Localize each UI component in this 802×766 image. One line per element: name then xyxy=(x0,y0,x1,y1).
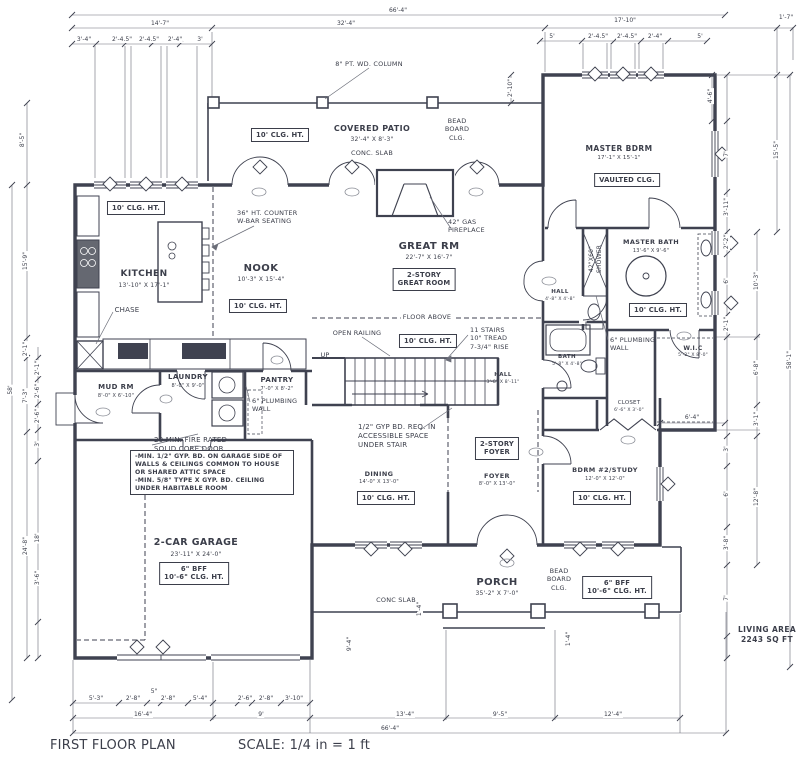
bdrm2-dims-line-0: 12'-0" X 12'-0" xyxy=(585,476,625,483)
shower-label: 42"X60"SHOWER xyxy=(588,245,604,273)
shower-label-line-0: 42"X60" xyxy=(588,245,596,273)
dim-label-0: 66'-4" xyxy=(388,8,408,14)
dining-line-0: DINING xyxy=(365,470,394,478)
kitchen-dims: 13'-10" X 17'-1" xyxy=(119,282,170,290)
garage-gyp-note-line-2: OR SHARED ATTIC SPACE xyxy=(135,469,289,477)
covered-patio-line-0: COVERED PATIO xyxy=(334,124,410,134)
dim-label-48: 5'-3" xyxy=(88,696,104,702)
dim-label-56: 16'-4" xyxy=(133,712,153,718)
floor-above-line-0: FLOOR ABOVE xyxy=(403,313,452,321)
kitchen-clg-box: 10' CLG. HT. xyxy=(107,201,165,215)
dim-label-23: 2'-6" xyxy=(35,383,41,399)
garage-gyp-note-line-4: UNDER HABITABLE ROOM xyxy=(135,485,289,493)
bath-dims: 5'-8" X 4'-8" xyxy=(552,362,582,368)
great-rm-dims-line-0: 22'-7" X 16'-7" xyxy=(406,254,453,262)
dim-label-16: 8'-5" xyxy=(20,132,26,148)
covered-patio-dims: 32'-4" X 8'-3" xyxy=(351,136,394,144)
kitchen-dims-line-0: 13'-10" X 17'-1" xyxy=(119,282,170,290)
dim-label-28: 4'-6" xyxy=(708,88,714,104)
porch-conc-slab-line-0: CONC SLAB xyxy=(376,596,416,604)
dim-label-45: 9'-4" xyxy=(347,636,353,652)
dim-label-31: 2'-2" xyxy=(724,234,730,250)
master-bdrm-dims: 17'-1" X 15'-1" xyxy=(597,155,640,162)
living-area-line-0: LIVING AREA xyxy=(738,625,796,635)
bead-board-clg-porch: BEADBOARDCLG. xyxy=(547,567,571,592)
fireplace-note-line-1: FIREPLACE xyxy=(448,226,485,234)
vaulted-clg-box: VAULTED CLG. xyxy=(594,173,660,187)
understair-note-line-1: ACCESSIBLE SPACE xyxy=(358,432,436,441)
dim-label-20: 24'-8" xyxy=(23,536,29,556)
pantry-line-0: PANTRY xyxy=(260,376,293,385)
dimension-lines xyxy=(12,15,793,733)
foyer-dims-line-0: 8'-0" X 13'-0" xyxy=(479,481,515,488)
dim-label-41: 7' xyxy=(724,594,730,601)
column-note-line-0: 8" PT. WD. COLUMN xyxy=(335,60,403,68)
fireplace-note-line-0: 42" GAS xyxy=(448,218,485,226)
mud-rm-dims: 8'-0" X 6'-10" xyxy=(98,393,134,400)
porch: PORCH xyxy=(476,576,517,589)
garage-bff-box-line-0: 6" BFF xyxy=(164,565,224,574)
garage-dims-line-0: 23'-11" X 24'-0" xyxy=(171,551,222,559)
dining-clg-box-line-0: 10' CLG. HT. xyxy=(362,494,410,503)
closet-line-0: CLOSET xyxy=(618,400,641,407)
up-label-line-0: UP xyxy=(320,351,329,359)
dim-label-52: 5'-4" xyxy=(192,696,208,702)
great-rm-box-line-1: GREAT ROOM xyxy=(398,279,451,288)
laundry: LAUNDRY xyxy=(168,373,208,382)
dim-label-60: 12'-4" xyxy=(603,712,623,718)
plumbing-wall-note-master-line-1: WALL xyxy=(610,344,655,352)
dim-label-34: 10'-3" xyxy=(754,271,760,291)
stair-clg-box: 10' CLG. HT. xyxy=(399,334,457,348)
stairs-note-line-1: 10" TREAD xyxy=(470,334,509,342)
foyer-box: 2-STORYFOYER xyxy=(475,437,519,460)
master-bdrm-line-0: MASTER BDRM xyxy=(586,144,653,154)
garage-dims: 23'-11" X 24'-0" xyxy=(171,551,222,559)
hall-upper-dims-line-0: 4'-8" X 4'-8" xyxy=(545,297,575,303)
understair-note: 1/2" GYP BD. REQ. INACCESSIBLE SPACEUNDE… xyxy=(358,423,436,450)
patio-conc-slab-line-0: CONC. SLAB xyxy=(351,149,393,157)
dim-label-10: 5' xyxy=(548,34,555,40)
dim-label-61: 66'-4" xyxy=(380,726,400,732)
great-rm-box-line-0: 2-STORY xyxy=(398,271,451,280)
dim-label-37: 3' xyxy=(724,445,730,452)
dim-label-53: 2'-6" xyxy=(237,696,253,702)
first-floor-plan-sheet: FIRST FLOOR PLANSCALE: 1/4 in = 1 ftLIVI… xyxy=(0,0,802,766)
dim-label-2: 32'-4" xyxy=(336,21,356,27)
plumbing-wall-note-pantry-line-0: 6" PLUMBING xyxy=(252,397,297,405)
stairs-note: 11 STAIRS10" TREAD7-3/4" RISE xyxy=(470,326,509,351)
dining-dims-line-0: 14'-0" X 13'-0" xyxy=(359,479,399,486)
open-railing: OPEN RAILING xyxy=(333,329,382,337)
hall-lower-dims-line-0: 3'-8" X 8'-11" xyxy=(487,380,520,386)
dim-label-36: 3'-1" xyxy=(754,411,760,427)
dim-label-50: 5" xyxy=(150,689,159,695)
living-area-line-1: 2243 SQ FT xyxy=(738,635,796,645)
bdrm2-clg-box-line-0: 10' CLG. HT. xyxy=(578,494,626,503)
foyer: FOYER xyxy=(484,472,510,480)
open-railing-line-0: OPEN RAILING xyxy=(333,329,382,337)
garage-gyp-note: -MIN. 1/2" GYP. BD. ON GARAGE SIDE OFWAL… xyxy=(130,450,294,495)
closet-dims-line-0: 6'-6" X 3'-0" xyxy=(614,408,644,414)
dim-label-55: 3'-10" xyxy=(284,696,304,702)
nook-line-0: NOOK xyxy=(244,262,279,275)
fire-door-note-line-0: 20 MIN. FIRE RATED xyxy=(154,436,227,445)
great-rm: GREAT RM xyxy=(399,240,460,253)
porch-dims: 35'-2" X 7'-0" xyxy=(476,590,519,598)
dim-label-39: 3'-8" xyxy=(724,535,730,551)
dim-label-54: 2'-8" xyxy=(258,696,274,702)
dining-clg-box: 10' CLG. HT. xyxy=(357,491,415,505)
understair-note-line-2: UNDER STAIR xyxy=(358,441,436,450)
hall-lower-dims: 3'-8" X 8'-11" xyxy=(487,380,520,386)
scale-note-line-0: SCALE: 1/4 in = 1 ft xyxy=(238,738,370,755)
chase: CHASE xyxy=(115,306,140,315)
dim-label-58: 13'-4" xyxy=(395,712,415,718)
dimension-ticks xyxy=(9,12,796,736)
nook-clg-box: 10' CLG. HT. xyxy=(229,299,287,313)
dim-label-25: 3' xyxy=(35,440,41,447)
understair-note-line-0: 1/2" GYP BD. REQ. IN xyxy=(358,423,436,432)
dim-label-4: 1'-7" xyxy=(778,15,794,21)
bath-dims-line-0: 5'-8" X 4'-8" xyxy=(552,362,582,368)
dim-label-14: 5' xyxy=(696,34,703,40)
dim-label-47: 1'-4" xyxy=(566,631,572,647)
dim-label-35: 6'-8" xyxy=(754,360,760,376)
bead-board-clg-top: BEADBOARDCLG. xyxy=(445,117,469,142)
foyer-line-0: FOYER xyxy=(484,472,510,480)
dim-label-26: 18' xyxy=(35,532,41,543)
dim-label-32: 6' xyxy=(724,277,730,284)
counter-note: 36" HT. COUNTERW-BAR SEATING xyxy=(237,209,297,226)
dim-label-51: 2'-8" xyxy=(160,696,176,702)
foyer-dims: 8'-0" X 13'-0" xyxy=(479,481,515,488)
wic-line-0: W.I.C xyxy=(683,345,702,353)
porch-bff-box: 6" BFF10'-6" CLG. HT. xyxy=(582,576,652,599)
dim-label-7: 2'-4.5" xyxy=(138,37,160,43)
living-area: LIVING AREA2243 SQ FT xyxy=(738,625,796,645)
laundry-dims-line-0: 8'-0" X 9'-0" xyxy=(172,383,205,390)
dim-label-22: 2'-1" xyxy=(35,360,41,376)
garage-line-0: 2-CAR GARAGE xyxy=(154,537,238,549)
nook: NOOK xyxy=(244,262,279,275)
master-bath-dims-line-0: 13'-6" X 9'-6" xyxy=(633,248,669,255)
dim-label-57: 9' xyxy=(257,712,264,718)
dim-label-15: 2'-10" xyxy=(508,78,514,98)
plumbing-wall-note-master: 6" PLUMBINGWALL xyxy=(610,336,655,353)
hall-lower: HALL xyxy=(494,372,511,379)
wic-dims: 5'-2" X 8'-0" xyxy=(678,353,708,359)
great-rm-line-0: GREAT RM xyxy=(399,240,460,253)
bdrm2: BDRM #2/STUDY xyxy=(572,466,638,474)
floor-above: FLOOR ABOVE xyxy=(401,313,454,321)
dim-label-19: 7'-3" xyxy=(23,388,29,404)
laundry-line-0: LAUNDRY xyxy=(168,373,208,382)
dim-label-21: 58' xyxy=(8,384,14,395)
nook-dims: 10'-3" X 15'-4" xyxy=(238,276,285,284)
garage-bff-box-line-1: 10'-6" CLG. HT. xyxy=(164,573,224,582)
bead-board-clg-top-line-2: CLG. xyxy=(445,134,469,142)
dim-label-27: 3'-6" xyxy=(35,570,41,586)
dining: DINING xyxy=(365,470,394,478)
bead-board-clg-porch-line-0: BEAD xyxy=(547,567,571,575)
stairs xyxy=(312,358,498,405)
wic: W.I.C xyxy=(683,345,702,353)
garage: 2-CAR GARAGE xyxy=(154,537,238,549)
dim-label-18: 2'-1" xyxy=(23,341,29,357)
fireplace-note: 42" GASFIREPLACE xyxy=(448,218,485,235)
porch-bff-box-line-1: 10'-6" CLG. HT. xyxy=(587,587,647,596)
mbath-clg-box: 10' CLG. HT. xyxy=(629,303,687,317)
dining-dims: 14'-0" X 13'-0" xyxy=(359,479,399,486)
dim-label-42: 15'-5" xyxy=(774,140,780,160)
bdrm2-dims: 12'-0" X 12'-0" xyxy=(585,476,625,483)
nook-dims-line-0: 10'-3" X 15'-4" xyxy=(238,276,285,284)
bdrm2-line-0: BDRM #2/STUDY xyxy=(572,466,638,474)
garage-gyp-note-line-0: -MIN. 1/2" GYP. BD. ON GARAGE SIDE OF xyxy=(135,453,289,461)
mud-rm: MUD RM xyxy=(98,383,134,392)
bead-board-clg-top-line-1: BOARD xyxy=(445,125,469,133)
closet: CLOSET xyxy=(618,400,641,407)
dim-label-5: 3'-4" xyxy=(76,37,92,43)
chase-line-0: CHASE xyxy=(115,306,140,315)
plumbing-wall-note-master-line-0: 6" PLUMBING xyxy=(610,336,655,344)
bead-board-clg-porch-line-1: BOARD xyxy=(547,575,571,583)
plumbing-wall-note-pantry-line-1: WALL xyxy=(252,405,297,413)
vaulted-clg-box-line-0: VAULTED CLG. xyxy=(599,176,655,185)
dim-label-8: 2'-4" xyxy=(167,37,183,43)
bath: BATH xyxy=(558,354,576,361)
master-bdrm: MASTER BDRM xyxy=(586,144,653,154)
master-bdrm-dims-line-0: 17'-1" X 15'-1" xyxy=(597,155,640,162)
great-rm-box: 2-STORYGREAT ROOM xyxy=(393,268,456,291)
dim-label-30: 3'-11" xyxy=(724,197,730,217)
laundry-dims: 8'-0" X 9'-0" xyxy=(172,383,205,390)
stairs-note-line-2: 7-3/4" RISE xyxy=(470,343,509,351)
dim-label-46: 1'-4" xyxy=(417,601,423,617)
pantry: PANTRY xyxy=(260,376,293,385)
mbath-clg-box-line-0: 10' CLG. HT. xyxy=(634,306,682,315)
dim-label-6: 2'-4.5" xyxy=(111,37,133,43)
foyer-box-line-0: 2-STORY xyxy=(480,440,514,449)
porch-line-0: PORCH xyxy=(476,576,517,589)
dim-label-59: 9'-5" xyxy=(492,712,508,718)
porch-bff-box-line-0: 6" BFF xyxy=(587,579,647,588)
plumbing-wall-note-pantry: 6" PLUMBINGWALL xyxy=(252,397,297,414)
shower-label-line-1: SHOWER xyxy=(596,245,604,273)
dim-label-43: 58'-1" xyxy=(787,350,793,370)
stair-clg-box-line-0: 10' CLG. HT. xyxy=(404,337,452,346)
wic-dims-line-0: 5'-2" X 8'-0" xyxy=(678,353,708,359)
great-rm-dims: 22'-7" X 16'-7" xyxy=(406,254,453,262)
porch-conc-slab: CONC SLAB xyxy=(376,596,416,604)
patio-clg-box: 10' CLG. HT. xyxy=(251,128,309,142)
dim-label-11: 2'-4.5" xyxy=(587,34,609,40)
closet-dims: 6'-6" X 3'-0" xyxy=(614,408,644,414)
patio-clg-box-line-0: 10' CLG. HT. xyxy=(256,131,304,140)
hall-upper: HALL xyxy=(551,289,568,296)
pantry-dims: 7'-0" X 8'-2" xyxy=(261,386,294,393)
up-label: UP xyxy=(320,351,329,359)
hall-upper-dims: 4'-8" X 4'-8" xyxy=(545,297,575,303)
dim-label-1: 14'-7" xyxy=(150,21,170,27)
covered-patio-dims-line-0: 32'-4" X 8'-3" xyxy=(351,136,394,144)
bead-board-clg-top-line-0: BEAD xyxy=(445,117,469,125)
counter-note-line-1: W-BAR SEATING xyxy=(237,217,297,225)
column-note: 8" PT. WD. COLUMN xyxy=(335,60,403,68)
stairs-note-line-0: 11 STAIRS xyxy=(470,326,509,334)
kitchen-clg-box-line-0: 10' CLG. HT. xyxy=(112,204,160,213)
patio-conc-slab: CONC. SLAB xyxy=(351,149,393,157)
mud-rm-dims-line-0: 8'-0" X 6'-10" xyxy=(98,393,134,400)
hall-lower-line-0: HALL xyxy=(494,372,511,379)
dim-label-38: 6' xyxy=(724,490,730,497)
dim-label-44: 6'-4" xyxy=(684,415,700,421)
bath-line-0: BATH xyxy=(558,354,576,361)
nook-clg-box-line-0: 10' CLG. HT. xyxy=(234,302,282,311)
master-bath: MASTER BATH xyxy=(623,238,679,246)
bead-board-clg-porch-line-2: CLG. xyxy=(547,584,571,592)
kitchen-line-0: KITCHEN xyxy=(120,269,167,281)
dim-label-29: 7' xyxy=(724,150,730,157)
counter-note-line-0: 36" HT. COUNTER xyxy=(237,209,297,217)
dim-label-13: 2'-4" xyxy=(647,34,663,40)
bdrm2-clg-box: 10' CLG. HT. xyxy=(573,491,631,505)
garage-bff-box: 6" BFF10'-6" CLG. HT. xyxy=(159,562,229,585)
garage-gyp-note-line-3: -MIN. 5/8" TYPE X GYP. BD. CEILING xyxy=(135,477,289,485)
dim-label-12: 2'-4.5" xyxy=(616,34,638,40)
title-line-0: FIRST FLOOR PLAN xyxy=(50,738,176,755)
foyer-box-line-1: FOYER xyxy=(480,448,514,457)
dim-label-24: 2'-6" xyxy=(35,408,41,424)
dim-label-40: 12'-8" xyxy=(754,487,760,507)
title: FIRST FLOOR PLAN xyxy=(50,738,176,755)
laundry-fixtures xyxy=(56,372,243,426)
dim-label-17: 15'-9" xyxy=(23,251,29,271)
mud-rm-line-0: MUD RM xyxy=(98,383,134,392)
fireplace xyxy=(375,168,455,218)
scale-note: SCALE: 1/4 in = 1 ft xyxy=(238,738,370,755)
garage-gyp-note-line-1: WALLS & CEILINGS COMMON TO HOUSE xyxy=(135,461,289,469)
dim-label-49: 2'-8" xyxy=(125,696,141,702)
dim-label-9: 3' xyxy=(196,37,203,43)
master-bath-dims: 13'-6" X 9'-6" xyxy=(633,248,669,255)
dim-label-3: 17'-10" xyxy=(613,18,637,24)
master-bath-line-0: MASTER BATH xyxy=(623,238,679,246)
dim-label-33: 2'-1" xyxy=(724,316,730,332)
kitchen: KITCHEN xyxy=(120,269,167,281)
porch-dims-line-0: 35'-2" X 7'-0" xyxy=(476,590,519,598)
covered-patio: COVERED PATIO xyxy=(334,124,410,134)
hall-upper-line-0: HALL xyxy=(551,289,568,296)
pantry-dims-line-0: 7'-0" X 8'-2" xyxy=(261,386,294,393)
